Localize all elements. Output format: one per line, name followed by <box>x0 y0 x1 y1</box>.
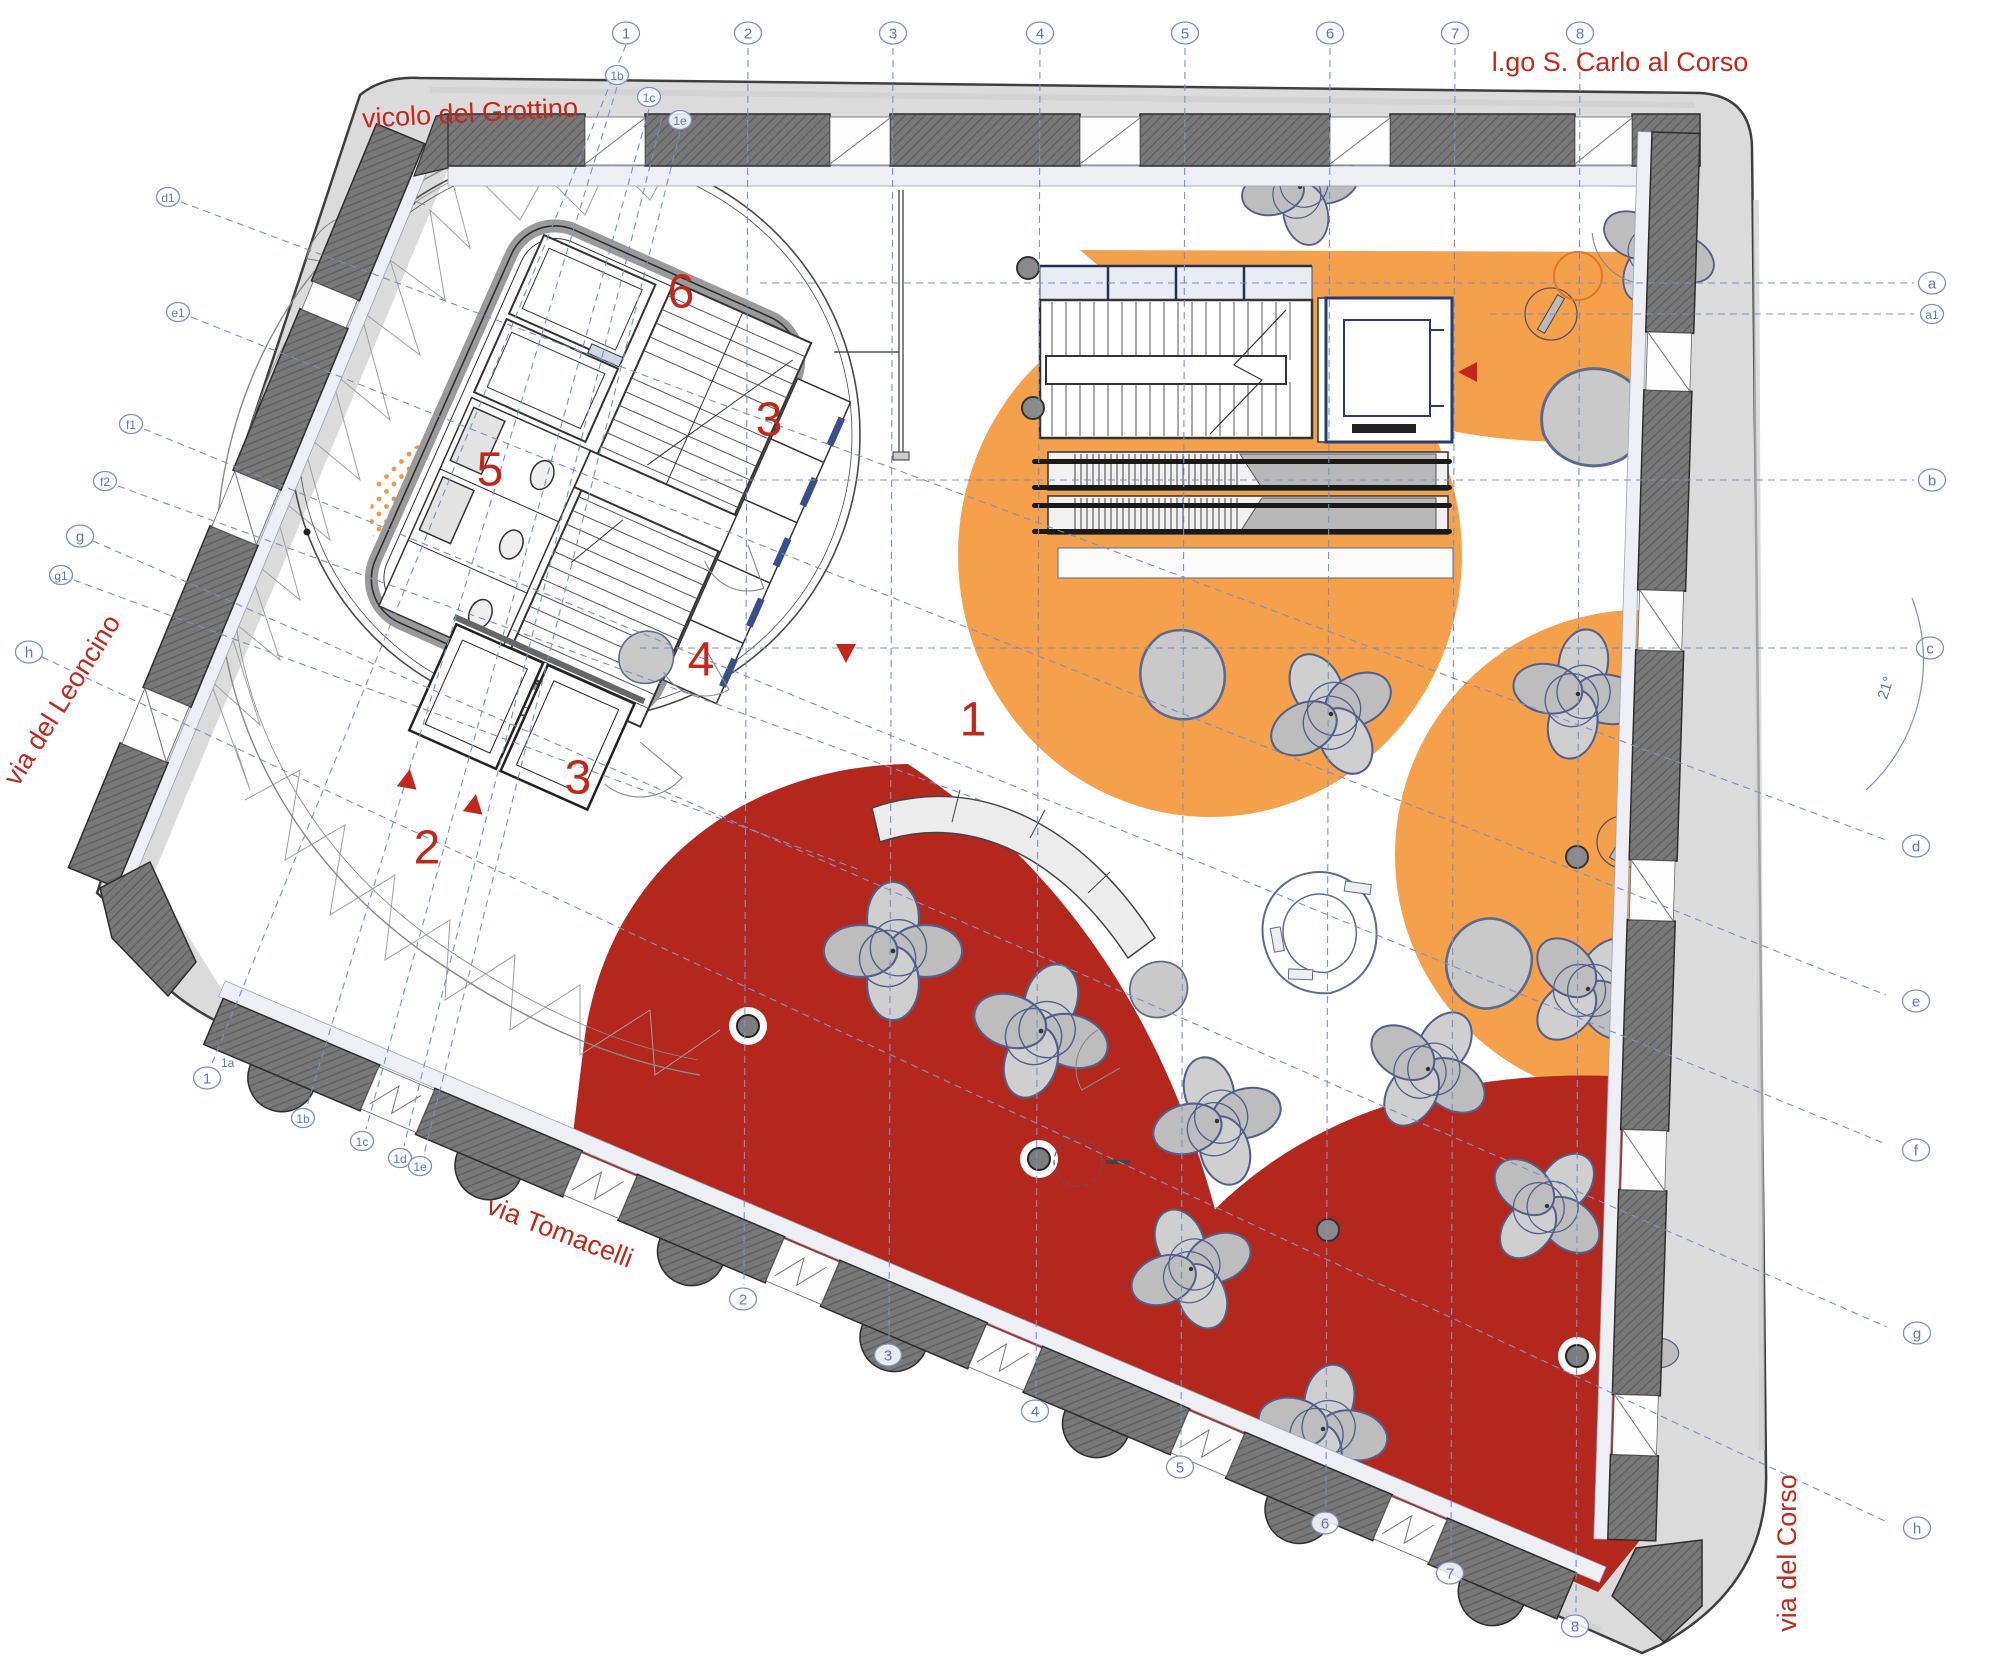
grid-label: 3 <box>875 1344 902 1366</box>
angle-dimension-text: 21° <box>1874 675 1897 702</box>
grid-label-text: h <box>1913 1521 1921 1538</box>
street-label-lgo-s-carlo-al-corso: l.go S. Carlo al Corso <box>1492 47 1749 77</box>
grid-label-text: 7 <box>1446 1566 1454 1583</box>
grid-label: e <box>1903 990 1930 1012</box>
grid-label: 4 <box>1022 1400 1049 1422</box>
grid-label: c <box>1917 637 1944 659</box>
grid-label-text: 7 <box>1451 26 1459 43</box>
zone-number-6: 6 <box>668 266 695 319</box>
grid-label: 5 <box>1167 1456 1194 1478</box>
column-with-ring <box>1020 1140 1058 1178</box>
grid-label-text: 1 <box>203 1071 211 1088</box>
grid-label: g <box>1904 1322 1931 1344</box>
grid-label: g <box>67 525 94 547</box>
wall-north <box>445 114 1700 186</box>
grid-label-text: 4 <box>1031 1404 1039 1421</box>
grid-label-text: 2 <box>744 26 752 43</box>
vertical-circulation-block <box>1032 266 1453 578</box>
zone-number-1: 1 <box>960 694 987 747</box>
escalators <box>1032 452 1453 578</box>
grid-label: d1 <box>157 188 180 207</box>
grid-label-text: 8 <box>1571 1619 1579 1636</box>
grid-label: 7 <box>1442 22 1469 44</box>
grid-label-text: g <box>1913 1326 1921 1343</box>
grid-label-text: 5 <box>1181 26 1189 43</box>
grid-label-text: 8 <box>1576 26 1584 43</box>
grid-label-text: a <box>1928 276 1937 293</box>
grid-label: b <box>1919 469 1946 491</box>
grid-label: 1e <box>409 1157 432 1176</box>
grid-label: e1 <box>167 303 190 322</box>
grid-label-text: f1 <box>126 418 136 432</box>
column <box>1317 1219 1339 1241</box>
grid-label: 3 <box>880 22 907 44</box>
zone-number-2: 2 <box>414 822 441 875</box>
grid-label: 8 <box>1567 22 1594 44</box>
grid-label: d <box>1903 835 1930 857</box>
grid-label-text: a1 <box>1925 308 1939 322</box>
grid-label-text: 6 <box>1326 26 1334 43</box>
grid-label-text: h <box>25 645 33 662</box>
grid-label: f1 <box>120 415 143 434</box>
grid-label: 1 <box>613 22 640 44</box>
grid-label: 2 <box>735 22 762 44</box>
grid-label: f2 <box>94 472 117 491</box>
grid-label: f <box>1903 1139 1930 1161</box>
grid-label: h <box>1904 1517 1931 1539</box>
column-with-ring <box>729 1007 767 1045</box>
grid-label-text: 1 <box>622 26 630 43</box>
grid-label-text: 3 <box>884 1348 892 1365</box>
grid-label-sup: 1a <box>221 1056 235 1070</box>
grid-label-text: 2 <box>739 1292 747 1309</box>
grid-label: 6 <box>1312 1512 1339 1534</box>
grid-label: 6 <box>1317 22 1344 44</box>
grid-label-text: 4 <box>1036 26 1044 43</box>
grid-label: 8 <box>1562 1615 1589 1637</box>
grid-label-text: 1b <box>610 69 624 83</box>
grid-label-text: 1e <box>413 1160 427 1174</box>
grid-label: a <box>1919 272 1946 294</box>
grid-label: 11a <box>194 1056 235 1089</box>
grid-label-text: d1 <box>161 191 175 205</box>
grid-label-text: 1b <box>296 1112 310 1126</box>
zone-number-5: 5 <box>477 444 504 497</box>
grid-label-text: e1 <box>171 306 185 320</box>
grid-label-text: e <box>1912 994 1920 1011</box>
grid-label-text: 3 <box>889 26 897 43</box>
grid-label-text: f2 <box>100 475 110 489</box>
grid-label: 1b <box>606 66 629 85</box>
grid-label: 1b <box>292 1109 315 1128</box>
column <box>1017 257 1039 279</box>
street-label-via-del-corso: via del Corso <box>1772 1474 1802 1632</box>
angle-annotation: 21° <box>1866 598 1923 790</box>
public-stair <box>1040 300 1312 438</box>
grid-label-text: 5 <box>1176 1460 1184 1477</box>
street-label-via-del-leoncino: via del Leoncino <box>0 609 126 790</box>
grid-label-text: 1e <box>673 114 687 128</box>
zone-number-4: 4 <box>688 634 715 687</box>
grid-label-text: 1d <box>393 1152 406 1166</box>
grid-label: 7 <box>1437 1562 1464 1584</box>
grid-label-text: g1 <box>54 569 68 583</box>
grid-label: 1c <box>351 1132 374 1151</box>
grid-label: g1 <box>50 566 73 585</box>
grid-label: 4 <box>1027 22 1054 44</box>
zone-number-3: 3 <box>565 752 592 805</box>
zone-number-3: 3 <box>756 394 783 447</box>
column <box>1566 846 1588 868</box>
column <box>1022 397 1044 419</box>
grid-label-text: 1c <box>356 1135 369 1149</box>
grid-label-text: g <box>76 529 84 546</box>
grid-label: 5 <box>1172 22 1199 44</box>
floor-plan-page: 22334455667788111a1b1b1c1c1d1e1eaa1bcd1d… <box>0 0 2000 1680</box>
floor-plan-drawing: 22334455667788111a1b1b1c1c1d1e1eaa1bcd1d… <box>0 0 2000 1680</box>
grid-label: 1c <box>638 88 661 107</box>
grid-label: 1e <box>669 111 692 130</box>
grid-label-text: 6 <box>1321 1516 1329 1533</box>
grid-label-text: d <box>1912 839 1920 856</box>
grid-label: 2 <box>730 1288 757 1310</box>
grid-label-text: 1c <box>643 91 656 105</box>
grid-label-text: b <box>1928 473 1936 490</box>
grid-label-text: c <box>1926 641 1934 658</box>
elevator <box>1318 298 1452 442</box>
grid-label: h <box>16 641 43 663</box>
grid-label: a1 <box>1921 305 1944 324</box>
